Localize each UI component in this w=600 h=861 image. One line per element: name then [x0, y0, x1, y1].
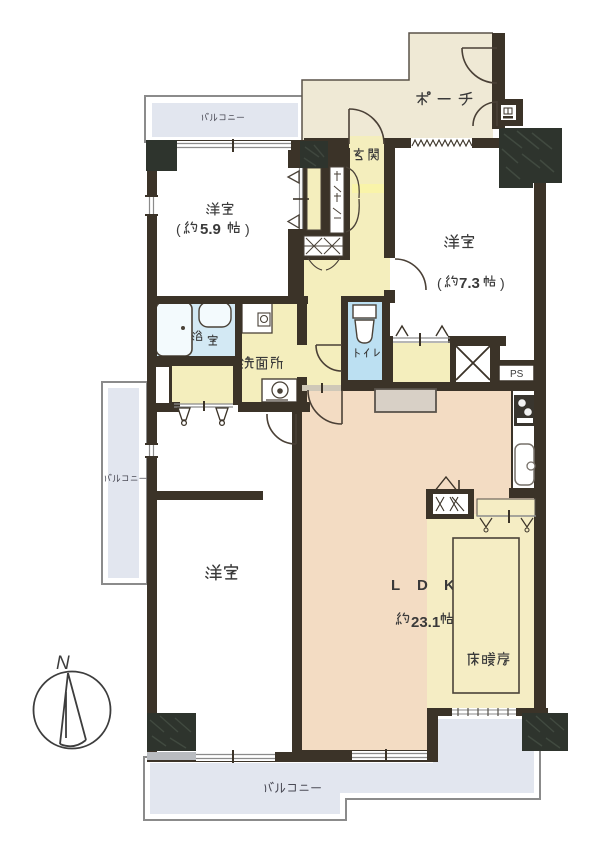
svg-text:): ): [500, 275, 505, 291]
svg-text:(: (: [176, 221, 181, 237]
svg-text:D: D: [417, 577, 428, 594]
svg-text:7.3: 7.3: [459, 275, 480, 292]
svg-text:N: N: [56, 653, 70, 674]
svg-text:5.9: 5.9: [200, 221, 221, 238]
svg-text:PS: PS: [510, 369, 524, 380]
svg-text:(: (: [437, 275, 442, 291]
svg-text:): ): [245, 221, 250, 237]
svg-text:23.1: 23.1: [411, 614, 440, 631]
svg-text:L: L: [391, 577, 400, 594]
